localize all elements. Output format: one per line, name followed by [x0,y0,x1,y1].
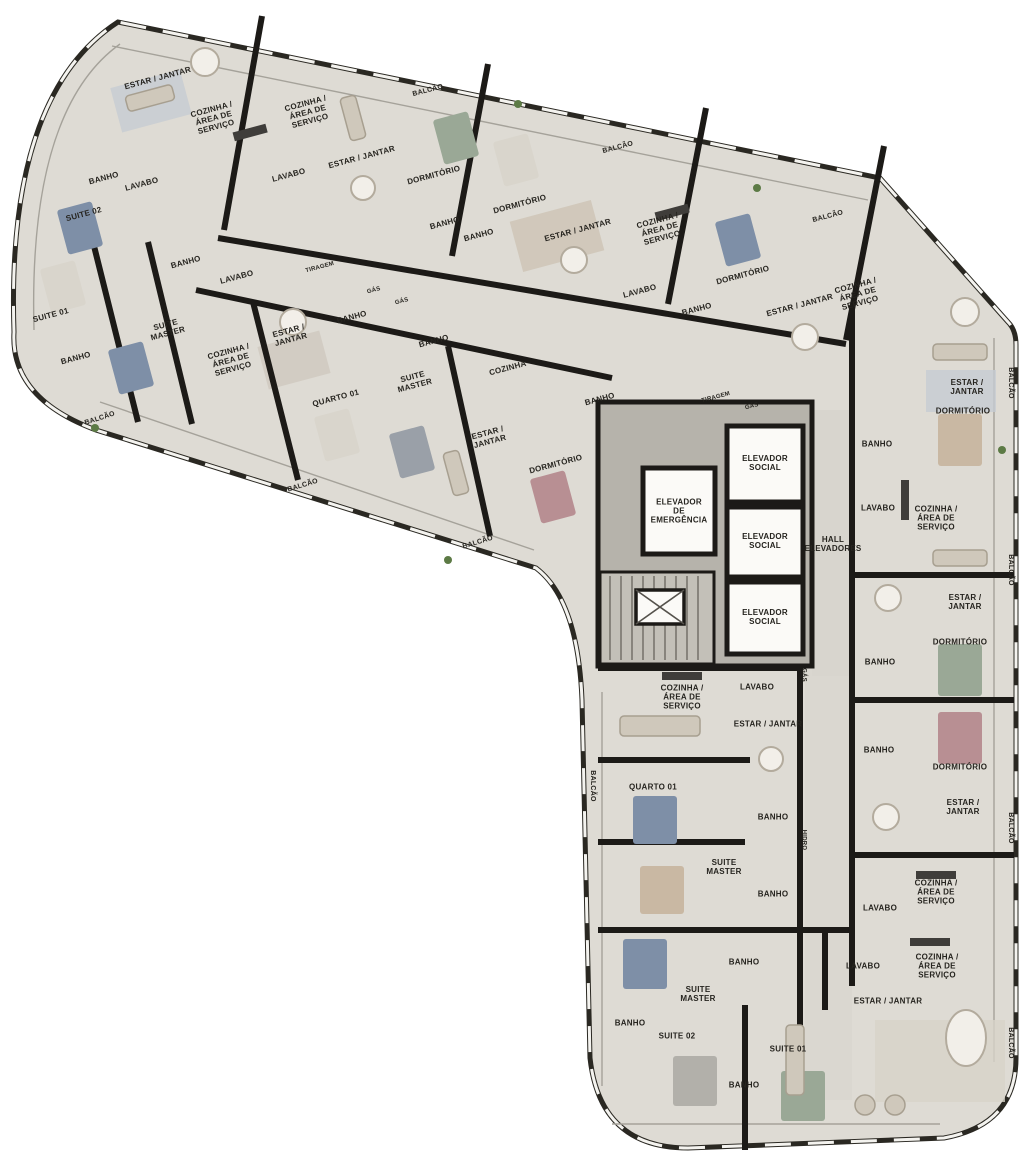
room-label: SUITE MASTER [680,986,715,1004]
room-label: ELEVADOR SOCIAL [742,609,788,627]
room-label: BANHO [864,747,895,756]
room-label: BANHO [865,659,896,668]
room-label: LAVABO [740,684,774,693]
floor-plan: ESTAR / JANTARCOZINHA / ÁREA DE SERVIÇOB… [0,0,1024,1153]
room-label: HIDRO [800,830,807,851]
stairs [600,572,714,664]
room-label: ESTAR / JANTAR [936,594,995,612]
room-label: BANHO [729,959,760,968]
room-label: COZINHA / ÁREA DE SERVIÇO [915,880,958,907]
room-label: ELEVADOR SOCIAL [742,455,788,473]
room-label: GÁS [800,668,807,682]
room-label: LAVABO [863,905,897,914]
room-label: BANHO [758,891,789,900]
room-label: BALCÃO [588,770,596,801]
room-label: QUARTO 01 [629,784,677,793]
room-label: COZINHA / ÁREA DE SERVIÇO [916,954,959,981]
room-label: LAVABO [846,963,880,972]
room-label: SUITE 02 [659,1033,696,1042]
room-label: ESTAR / JANTAR [854,998,923,1007]
room-label: DORMITÓRIO [933,764,988,773]
room-label: DORMITÓRIO [933,639,988,648]
room-label: SUITE MASTER [706,859,741,877]
slab-layer [13,22,1016,1148]
room-label: ESTAR / JANTAR [933,799,994,817]
room-label: BALCÃO [1006,1027,1014,1058]
room-label: BALCÃO [1006,812,1014,843]
room-label: BALCÃO [1006,554,1014,585]
room-label: BANHO [758,814,789,823]
room-label: ELEVADOR DE EMERGÊNCIA [651,499,708,526]
room-label: ESTAR / JANTAR [939,379,996,397]
room-label: BALCÃO [1006,367,1014,398]
room-label: LAVABO [861,505,895,514]
room-label: COZINHA / ÁREA DE SERVIÇO [915,506,958,533]
room-label: BANHO [862,441,893,450]
room-label: HALL ELEVADORES [804,536,861,554]
room-label: ESTAR / JANTAR [734,721,803,730]
room-label: ELEVADOR SOCIAL [742,533,788,551]
room-label: BANHO [615,1020,646,1029]
room-label: SUITE 01 [770,1046,807,1055]
room-label: COZINHA / ÁREA DE SERVIÇO [661,685,704,712]
floor-plan-graphic [0,0,1024,1153]
room-label: DORMITÓRIO [936,408,991,417]
room-label: BANHO [729,1082,760,1091]
